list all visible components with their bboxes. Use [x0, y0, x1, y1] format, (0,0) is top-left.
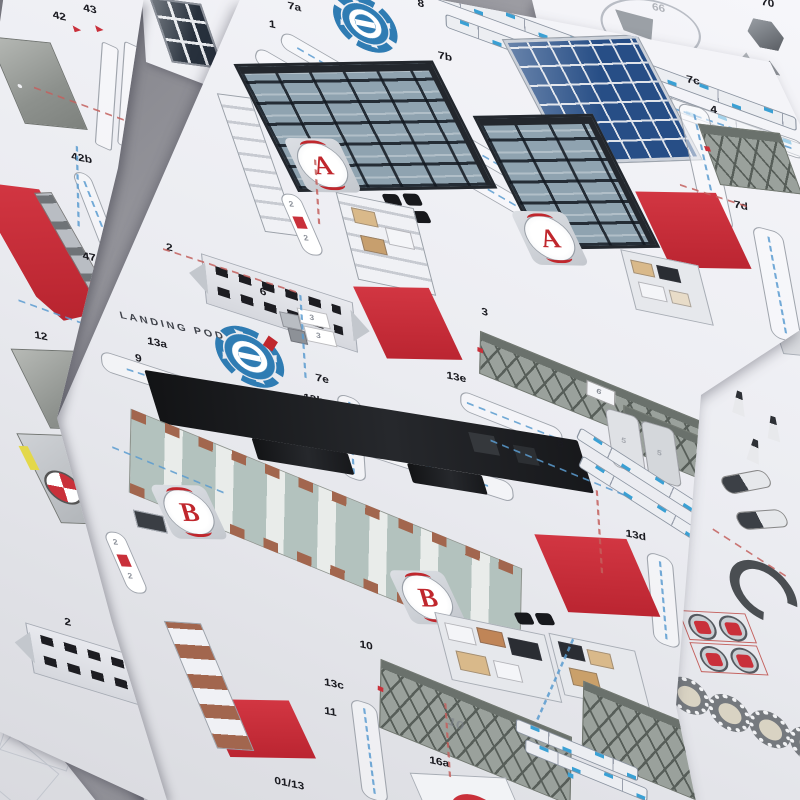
part-label-11: 11	[323, 706, 338, 719]
part-label-13e: 13e	[445, 371, 468, 386]
part-label-8: 8	[556, 439, 565, 451]
strip-part-13e	[460, 389, 562, 449]
guide-line	[34, 87, 136, 125]
curved-band-part	[733, 509, 791, 530]
ladder-strip: 2 2	[102, 531, 149, 594]
small-gray-part	[774, 326, 800, 357]
marker-a-pad: A	[283, 138, 363, 193]
black-pad	[390, 211, 412, 223]
part-4-panel	[698, 123, 800, 194]
black-gloss-step	[251, 438, 354, 475]
photo-vignette	[0, 0, 800, 800]
porthole-box	[678, 610, 757, 643]
curved-band-part	[718, 469, 774, 495]
black-pad	[402, 193, 424, 205]
part-label-8: 8	[416, 0, 425, 10]
truss-strip-part	[516, 718, 639, 781]
black-gloss-print	[144, 370, 594, 494]
marker-b-letter: B	[174, 498, 205, 525]
black-pad	[513, 612, 535, 624]
part-label-13b: 13b	[302, 393, 325, 408]
truss-panel-part-10: 10	[379, 659, 572, 800]
window-frame-part	[149, 0, 224, 69]
guide-line	[596, 490, 603, 574]
truss-panel-part	[582, 681, 730, 800]
marker-b-pad: B	[388, 570, 468, 625]
ring-part-16a	[410, 773, 546, 800]
photo-of-papercraft-sheets: 66 70	[0, 0, 800, 800]
page-number: 01/13	[273, 776, 306, 793]
part-label-2: 2	[63, 617, 73, 629]
small-gray-part	[760, 249, 796, 283]
guide-line	[299, 295, 306, 379]
red-hex-landing-pad	[0, 181, 113, 321]
part-label-4: 4	[709, 104, 718, 116]
strip-part-43	[117, 41, 141, 152]
part-label-43: 43	[82, 3, 99, 16]
part-label-6: 6	[258, 287, 267, 299]
part-label-13c: 13c	[323, 677, 346, 692]
part-label-16b: 16b	[148, 651, 172, 666]
truss-strip-part	[525, 739, 648, 800]
faint-part-outline	[0, 690, 86, 771]
marker-b-letter: B	[412, 584, 443, 611]
interior-detail-block	[133, 510, 168, 534]
strip-part-7a	[279, 30, 541, 195]
small-box-column	[217, 93, 299, 236]
strip-part-7c	[677, 102, 735, 232]
interior-detail-block	[548, 633, 651, 713]
module-rack-grid	[233, 60, 497, 191]
main-sheet-page-01: 8 7a 1 7b 7c 4	[0, 0, 800, 800]
guide-line	[76, 146, 80, 227]
guide-line	[147, 0, 225, 113]
part-label-47: 47	[81, 251, 98, 264]
part-label-10: 10	[358, 639, 374, 652]
landing-pod-gear-icon	[208, 320, 291, 394]
truss-strip-part	[578, 455, 734, 563]
part-label-13d: 13d	[624, 529, 647, 544]
bearing-ring-part	[664, 673, 713, 718]
tan-crate	[351, 207, 379, 228]
strip-part-42b	[71, 171, 141, 306]
part-label-7a: 7a	[287, 1, 303, 14]
part-label-16a: 16a	[428, 755, 451, 770]
cabinet-column	[336, 192, 437, 296]
red-pad-panel	[203, 699, 316, 758]
truss-strip-part	[445, 14, 800, 165]
guide-line	[491, 440, 625, 496]
part-label-9: 9	[134, 353, 143, 365]
marker-b-circle: B	[393, 574, 461, 621]
strip-part-7e	[337, 392, 367, 483]
part-label-13a: 13a	[146, 336, 169, 351]
guide-line	[121, 542, 130, 611]
round-part-outline	[590, 0, 712, 60]
part-label-7c: 7c	[685, 74, 701, 87]
red-arrow-tick	[72, 25, 82, 33]
black-pad	[534, 613, 556, 625]
gray-box-part	[0, 36, 88, 130]
marker-a-letter: A	[534, 225, 565, 252]
part-6-group: 3 3	[277, 303, 339, 351]
truss-strip-part	[576, 427, 732, 535]
seat-row-part	[25, 622, 187, 720]
target-circle-part	[40, 467, 88, 507]
tan-crate	[360, 235, 388, 256]
part-label-42: 42	[51, 10, 68, 23]
teal-panel-band	[129, 409, 522, 653]
black-pad	[410, 211, 432, 223]
yellow-strip	[19, 446, 40, 470]
gray-wedge	[615, 9, 662, 40]
strip-part-7d	[752, 225, 800, 345]
red-dot	[704, 146, 711, 152]
red-pad-panel	[635, 192, 751, 269]
part-label-7e: 7e	[314, 373, 330, 386]
red-pad-panel	[353, 287, 462, 360]
interior-detail-block	[434, 612, 562, 703]
guide-line	[680, 184, 747, 207]
marker-a-letter: A	[307, 152, 338, 179]
marker-a-circle: A	[516, 215, 584, 262]
red-arrow-tick	[95, 25, 105, 33]
part-label-70: 70	[760, 0, 776, 10]
guide-line	[712, 528, 786, 576]
small-gray-part	[739, 179, 775, 213]
guide-line	[112, 446, 223, 493]
ring-part-16b: 16a	[135, 669, 238, 739]
landing-pod-gear-icon	[327, 0, 404, 59]
pad-frame-strip	[34, 192, 128, 327]
bearing-ring-part	[705, 691, 754, 736]
gray-panel-part	[16, 433, 142, 526]
module-rack-grid	[473, 114, 661, 250]
hex-nut-part	[744, 16, 787, 52]
under-sheet-bottom-left	[0, 0, 800, 800]
c-clamp-part	[716, 552, 800, 631]
part-label-1: 1	[268, 19, 277, 31]
marker-b-circle: B	[155, 489, 223, 536]
gray-wedge	[731, 49, 756, 69]
guide-line	[536, 638, 574, 720]
strip-part-13c	[350, 698, 389, 800]
guide-line	[163, 248, 296, 293]
cone-part	[763, 413, 784, 444]
ladder-strip: 2 2	[278, 193, 325, 256]
landing-pod-wordmark: LANDING POD	[119, 311, 227, 343]
part-label-66: 66	[651, 2, 667, 15]
cone-part	[729, 387, 750, 418]
red-pad-panel	[534, 534, 660, 617]
bearing-ring-part	[786, 723, 800, 768]
solar-panel-part	[503, 35, 701, 164]
truss-panel-part-3	[479, 331, 705, 465]
gray-panel-part	[11, 349, 122, 431]
marker-a-circle: A	[289, 142, 357, 189]
left-sheet: 43 42 42b 47 12 2	[0, 0, 800, 800]
truss-strip-part	[427, 0, 797, 131]
rust-tab-column	[164, 621, 254, 751]
under-sheet-top-window	[0, 0, 800, 800]
black-gloss-step	[407, 463, 488, 495]
door-panel-part: 5 5	[605, 407, 682, 486]
bearing-ring-part	[745, 707, 794, 752]
strip-part-1	[253, 46, 547, 230]
porthole-box	[689, 642, 768, 675]
white-box	[385, 227, 416, 250]
guide-line	[444, 703, 451, 777]
seat-row-part	[201, 253, 358, 353]
truss-panel-extension	[622, 405, 720, 487]
strip-part-42	[95, 41, 119, 152]
gray-wedge	[758, 58, 780, 75]
strip-part-13d	[646, 550, 680, 650]
part-label-2: 2	[165, 242, 174, 254]
strip-part-13a	[100, 350, 514, 504]
part-label-7d: 7d	[733, 200, 750, 214]
part-label-42b: 42b	[70, 152, 94, 167]
part-label-7b: 7b	[437, 51, 454, 65]
part-label-3: 3	[480, 307, 489, 319]
guide-line	[314, 159, 320, 224]
under-sheet-right: 66 70	[0, 0, 800, 800]
interior-detail-block	[620, 249, 714, 326]
marker-b-pad: B	[149, 485, 229, 540]
guide-line	[18, 299, 165, 354]
black-pad	[381, 194, 403, 206]
faint-part-outline	[0, 734, 59, 800]
bearing-ring-part	[621, 656, 670, 701]
cone-part	[743, 435, 766, 467]
marker-a-pad: A	[510, 211, 590, 266]
strip-part-7b	[591, 71, 800, 161]
sticker-6: 6	[586, 380, 615, 407]
part-label-12: 12	[33, 330, 50, 343]
arc-part-47	[86, 266, 146, 332]
